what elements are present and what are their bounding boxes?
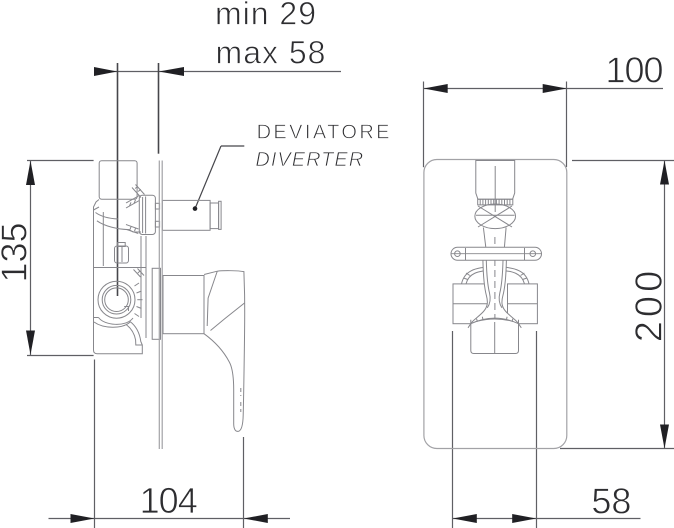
svg-text:104: 104 [140, 480, 197, 521]
svg-text:135: 135 [0, 222, 35, 282]
svg-text:min 29: min 29 [215, 0, 317, 32]
svg-text:max 58: max 58 [216, 35, 327, 71]
svg-text:100: 100 [605, 49, 662, 90]
svg-text:DIVERTER: DIVERTER [255, 149, 364, 171]
svg-text:58: 58 [591, 481, 631, 522]
svg-text:DEVIATORE: DEVIATORE [257, 122, 392, 144]
